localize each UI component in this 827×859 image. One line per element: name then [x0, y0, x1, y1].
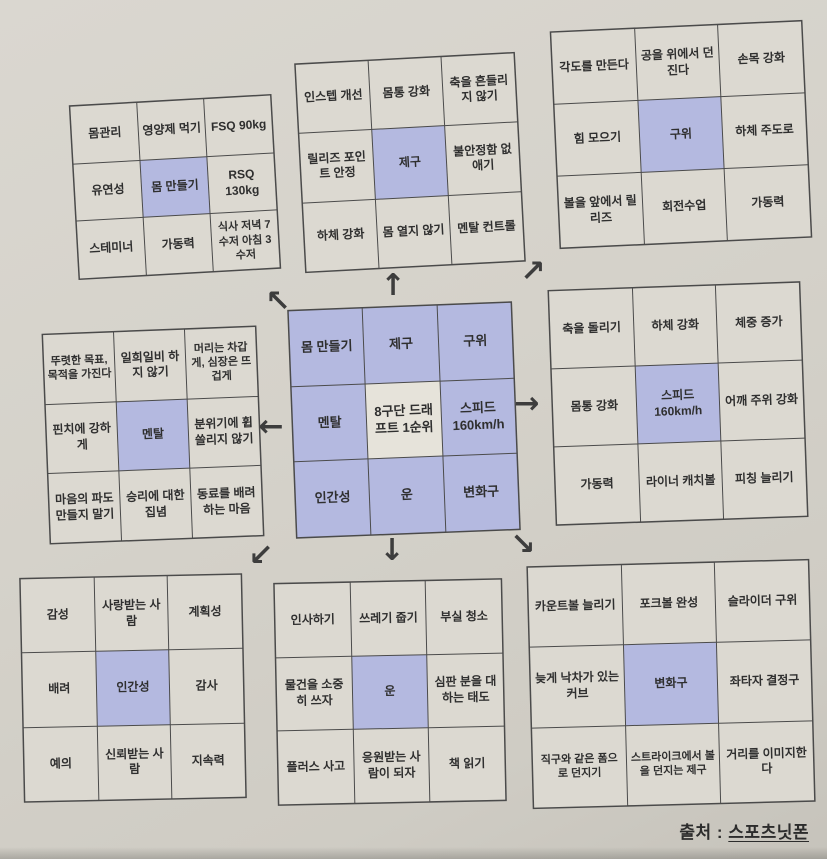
grid-mental: 뚜렷한 목표, 목적을 가진다 일희일비 하지 않기 머리는 차갑게, 심장은 …	[42, 326, 264, 544]
grid-cell: 플러스 사고	[278, 730, 354, 804]
grid-cell: 회전수업	[641, 169, 727, 244]
grid-cell: 멘탈 컨트롤	[449, 192, 524, 264]
grid-cell: 변화구	[443, 454, 519, 531]
grid-cell-theme: 스피드 160km/h	[635, 364, 720, 444]
grid-cell-theme: 몸 만들기	[140, 157, 209, 217]
grid-cell: 가동력	[144, 214, 213, 274]
grid-cell: 뚜렷한 목표, 목적을 가진다	[43, 332, 116, 403]
grid-cell: 지속력	[171, 723, 245, 798]
grid-cell: 유연성	[74, 161, 143, 221]
grid-pitch-control: 인스텝 개선 몸통 강화 축을 흔들리지 않기 릴리즈 포인트 안정 제구 불안…	[295, 52, 526, 272]
grid-cell: 거리를 이미지한다	[719, 721, 814, 803]
grid-breaking-ball: 카운트볼 늘리기 포크볼 완성 슬라이더 구위 늦게 낙차가 있는 커브 변화구…	[527, 559, 815, 808]
grid-cell: 쓰레기 줍기	[350, 581, 426, 655]
grid-humanity: 감성 사랑받는 사람 계획성 배려 인간성 감사 예의 신뢰받는 사람 지속력	[20, 574, 247, 803]
grid-cell: 스테미너	[77, 218, 146, 278]
grid-cell: 축을 돌리기	[549, 289, 634, 369]
grid-cell: 일희일비 하지 않기	[114, 330, 187, 401]
grid-body-building: 몸관리 영양제 먹기 FSQ 90kg 유연성 몸 만들기 RSQ 130kg …	[69, 94, 280, 279]
grid-cell: 동료를 배려하는 마음	[190, 466, 263, 537]
arrow-down-icon: ↓	[379, 536, 404, 566]
grid-cell: 인스텝 개선	[296, 61, 371, 133]
grid-cell: 몸 열지 않기	[376, 196, 451, 268]
grid-cell: 좌타자 결정구	[717, 641, 812, 723]
grid-cell: 피칭 늘리기	[722, 439, 807, 519]
grid-cell: 가동력	[554, 444, 639, 524]
grid-cell: 영양제 먹기	[137, 99, 206, 159]
grid-cell: 심판 분을 대하는 태도	[428, 653, 504, 727]
grid-cell: FSQ 90kg	[204, 96, 273, 156]
grid-cell: 몸통 강화	[369, 57, 444, 129]
grid-cell: 하체 주도로	[722, 93, 808, 168]
grid-cell: 몸통 강화	[552, 367, 637, 447]
grid-cell: 배려	[22, 652, 96, 727]
grid-cell: 사랑받는 사람	[94, 576, 168, 651]
grid-cell: 부실 청소	[426, 580, 502, 654]
grid-cell: RSQ 130kg	[207, 153, 276, 213]
grid-cell: 마음의 파도 만들지 말기	[48, 472, 121, 543]
grid-cell: 감성	[21, 578, 95, 653]
grid-cell: 어깨 주위 강화	[719, 361, 804, 441]
grid-cell: 핀치에 강하게	[46, 402, 119, 473]
source-caption-name: 스포츠닛폰	[728, 823, 809, 842]
grid-cell: 손목 강화	[718, 21, 804, 96]
grid-luck: 인사하기 쓰레기 줍기 부실 청소 물건을 소중히 쓰자 운 심판 분을 대하는…	[274, 579, 507, 806]
grid-cell: 릴리즈 포인트 안정	[299, 130, 374, 202]
source-caption: 출처 : 스포츠닛폰	[679, 818, 809, 843]
grid-cell: 계획성	[168, 575, 242, 650]
grid-cell: 스트라이크에서 볼을 던지는 제구	[626, 723, 721, 805]
grid-cell: 감사	[170, 649, 244, 724]
arrow-left-icon: ←	[258, 412, 283, 442]
arrow-up-right-icon: ↗	[520, 257, 545, 287]
grid-cell: 각도를 만든다	[551, 29, 637, 104]
grid-cell: 식사 저녁 7수저 아침 3수저	[211, 211, 280, 271]
arrow-down-left-icon: ↙	[248, 541, 273, 571]
arrow-up-icon: ↑	[380, 271, 405, 301]
grid-cell: 머리는 차갑게, 심장은 뜨겁게	[185, 327, 258, 398]
grid-cell: 구위	[437, 303, 513, 380]
grid-cell: 직구와 같은 폼으로 던지기	[532, 726, 627, 808]
grid-cell: 인사하기	[275, 583, 351, 657]
grid-cell-theme: 멘탈	[117, 399, 190, 470]
grid-speed: 축을 돌리기 하체 강화 체중 증가 몸통 강화 스피드 160km/h 어깨 …	[548, 282, 808, 526]
grid-cell-theme: 운	[352, 655, 428, 729]
grid-cell: 몸관리	[70, 103, 139, 163]
grid-cell: 힘 모으기	[555, 101, 641, 176]
grid-cell: 분위기에 휩쓸리지 않기	[188, 397, 261, 468]
grid-cell: 물건을 소중히 쓰자	[276, 656, 352, 730]
grid-cell: 볼을 앞에서 릴리즈	[558, 173, 644, 248]
grid-cell-theme: 인간성	[96, 651, 170, 726]
grid-cell-theme: 변화구	[624, 643, 719, 725]
source-caption-prefix: 출처 :	[679, 823, 728, 842]
grid-cell: 운	[369, 457, 445, 534]
grid-cell: 멘탈	[292, 384, 368, 461]
grid-cell: 가동력	[725, 165, 811, 240]
grid-main-goal: 몸 만들기 제구 구위 멘탈 8구단 드래프트 1순위 스피드 160km/h …	[288, 302, 521, 538]
grid-cell: 인간성	[295, 460, 371, 537]
grid-cell: 스피드 160km/h	[440, 378, 516, 455]
grid-cell: 라이너 캐치볼	[638, 442, 723, 522]
main-goal-cell: 8구단 드래프트 1순위	[366, 381, 442, 458]
grid-cell: 카운트볼 늘리기	[528, 565, 623, 647]
grid-cell: 공을 위에서 던진다	[635, 25, 721, 100]
grid-cell: 승리에 대한 집념	[119, 469, 192, 540]
mandala-chart-page: 몸관리 영양제 먹기 FSQ 90kg 유연성 몸 만들기 RSQ 130kg …	[0, 0, 827, 859]
grid-cell: 하체 강화	[303, 200, 378, 272]
grid-cell: 제구	[363, 306, 439, 383]
grid-ball-quality: 각도를 만든다 공을 위에서 던진다 손목 강화 힘 모으기 구위 하체 주도로…	[550, 20, 812, 248]
grid-cell: 하체 강화	[633, 286, 718, 366]
arrow-up-left-icon: ↖	[265, 287, 290, 317]
grid-cell: 늦게 낙차가 있는 커브	[530, 646, 625, 728]
grid-cell: 불안정함 없애기	[445, 123, 520, 195]
arrow-down-right-icon: ↘	[510, 530, 535, 560]
grid-cell: 슬라이더 구위	[715, 560, 810, 642]
grid-cell: 신뢰받는 사람	[97, 725, 171, 800]
grid-cell-theme: 구위	[638, 97, 724, 172]
grid-cell: 응원받는 사람이 되자	[353, 729, 429, 803]
grid-cell: 체중 증가	[716, 283, 801, 363]
grid-cell: 축을 흔들리지 않기	[442, 53, 517, 125]
grid-cell: 포크볼 완성	[622, 563, 717, 645]
grid-cell-theme: 제구	[372, 126, 447, 198]
arrow-right-icon: →	[514, 389, 539, 419]
grid-cell: 예의	[24, 726, 98, 801]
grid-cell: 책 읽기	[429, 727, 505, 801]
grid-cell: 몸 만들기	[289, 309, 365, 386]
